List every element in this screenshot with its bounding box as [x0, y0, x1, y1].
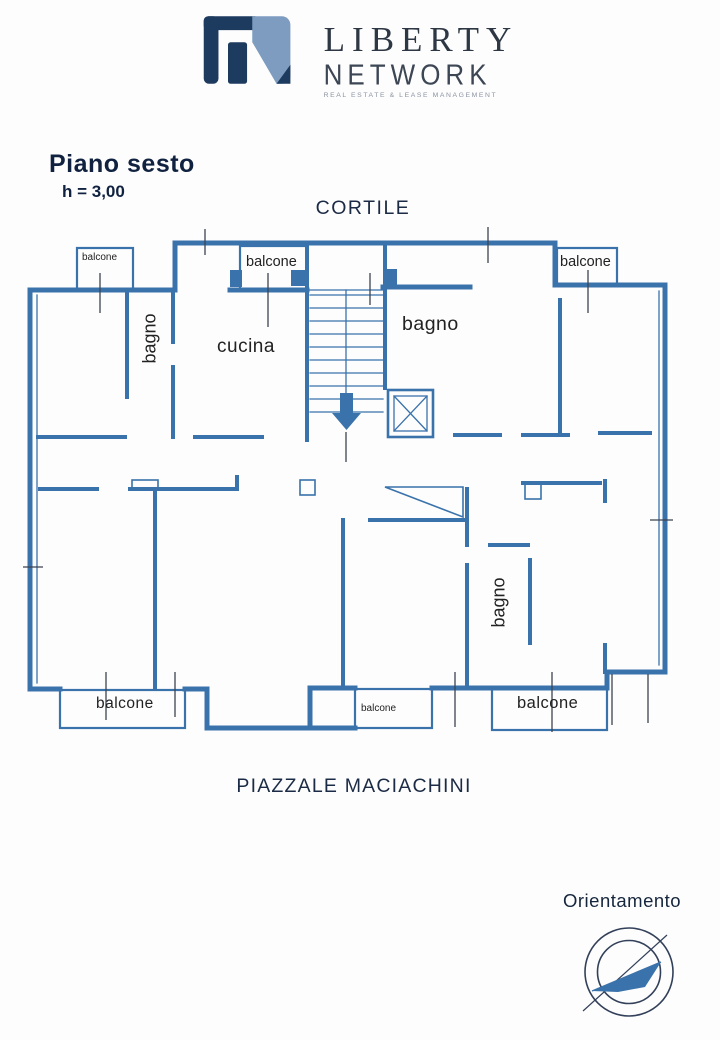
room-label-cucina: cucina: [217, 336, 275, 358]
logo-subtitle: NETWORK: [324, 60, 492, 89]
logo: LIBERTY NETWORK REAL ESTATE & LEASE MANA…: [0, 10, 720, 99]
elevator: [388, 390, 433, 437]
window-ticks: [23, 227, 673, 732]
interior-walls: [38, 292, 650, 689]
fixtures: [132, 480, 541, 517]
balcony-label-top-center: balcone: [246, 254, 297, 270]
floor-height-note: h = 3,00: [62, 182, 125, 202]
pillars: [230, 269, 397, 287]
balcony-label-bottom-right: balcone: [517, 694, 578, 713]
room-label-bagno-left: bagno: [140, 303, 161, 375]
balcony-label-top-right: balcone: [560, 254, 611, 270]
floor-title: Piano sesto: [49, 150, 195, 179]
logo-ln-mark-icon: [202, 10, 306, 90]
balcony-label-top-left: balcone: [82, 252, 117, 263]
logo-title: LIBERTY: [324, 22, 519, 57]
logo-tagline: REAL ESTATE & LEASE MANAGEMENT: [324, 92, 498, 99]
balcony-label-bottom-center: balcone: [361, 703, 396, 714]
balcony-label-bottom-left: balcone: [96, 695, 154, 713]
compass-icon: [555, 910, 715, 1040]
floorplan-drawing: [15, 225, 705, 745]
street-label: PIAZZALE MACIACHINI: [214, 775, 494, 798]
room-label-bagno-bottom: bagno: [489, 567, 510, 639]
orientation-label: Orientamento: [563, 890, 681, 912]
compass-needle-icon: [592, 962, 661, 992]
room-label-bagno-top-right: bagno: [402, 313, 459, 336]
courtyard-label: CORTILE: [283, 197, 443, 220]
